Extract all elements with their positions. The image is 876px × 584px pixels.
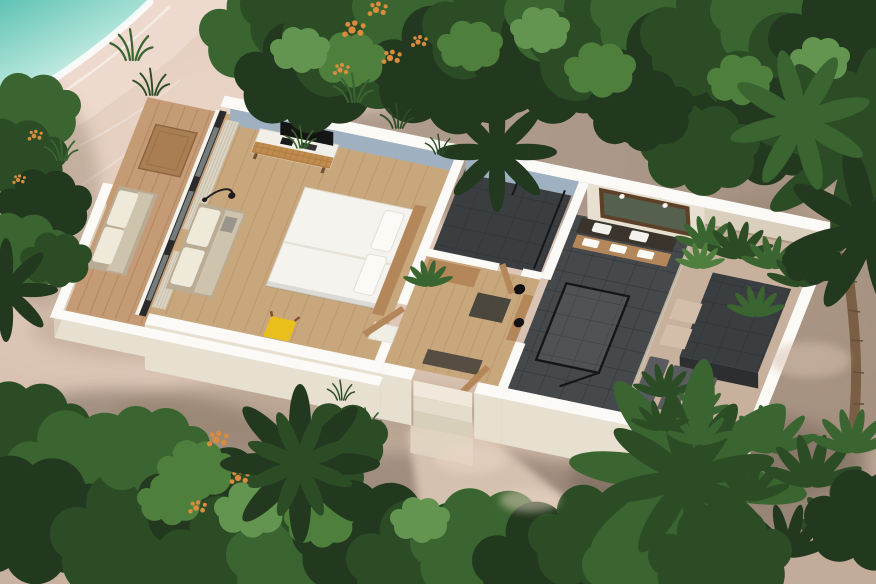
small-palm [437,92,557,212]
scene-canvas: Aerial 3D cutaway floor-plan render of a… [0,0,876,584]
villa-floorplan-render: Aerial 3D cutaway floor-plan render of a… [0,0,876,584]
